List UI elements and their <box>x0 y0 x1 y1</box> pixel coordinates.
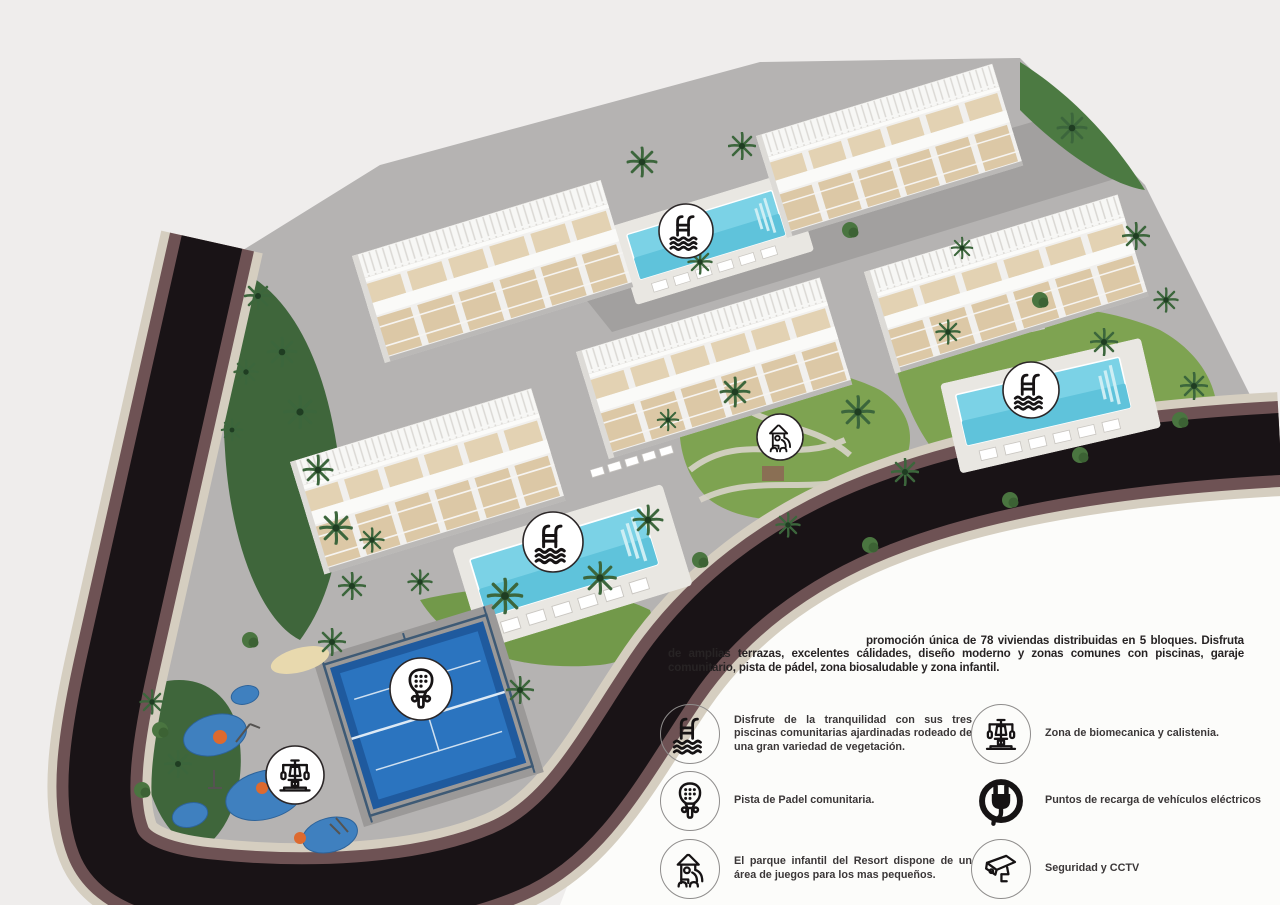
padel-racket-icon <box>669 780 711 822</box>
legend-item-padel: Pista de Padel comunitaria. <box>660 771 972 831</box>
pool-badge-center <box>523 512 583 572</box>
playground-badge <box>757 414 803 460</box>
legend-text-playground: El parque infantil del Resort dispone de… <box>734 855 972 882</box>
legend-circle <box>971 839 1031 899</box>
playground-icon <box>669 848 711 890</box>
pool-icon <box>669 713 711 755</box>
legend-text-ev-charging: Puntos de recarga de vehículos eléctrico… <box>1045 794 1280 808</box>
pool-badge-top <box>659 204 713 258</box>
legend-item-ev-charging: Puntos de recarga de vehículos eléctrico… <box>971 771 1280 831</box>
cctv-icon <box>980 848 1022 890</box>
legend-circle <box>660 839 720 899</box>
biomechanics-icon <box>980 713 1022 755</box>
legend-circle <box>971 704 1031 764</box>
legend-item-biomechanics: Zona de biomecanica y calistenia. <box>971 704 1280 764</box>
intro-paragraph: promoción única de 78 viviendas distribu… <box>668 634 1244 674</box>
legend-circle <box>660 704 720 764</box>
legend-circle <box>660 771 720 831</box>
legend-text-cctv: Seguridad y CCTV <box>1045 862 1280 876</box>
legend-text-biomechanics: Zona de biomecanica y calistenia. <box>1045 727 1280 741</box>
legend-text-padel: Pista de Padel comunitaria. <box>734 794 972 808</box>
biomech-badge <box>266 746 324 804</box>
legend-circle <box>971 771 1031 831</box>
legend-item-cctv: Seguridad y CCTV <box>971 839 1280 899</box>
legend-item-pools: Disfrute de la tranquilidad con sus tres… <box>660 704 972 764</box>
pool-badge-right <box>1003 362 1059 418</box>
ev-charger-icon <box>975 775 1027 827</box>
legend-item-playground: El parque infantil del Resort dispone de… <box>660 839 972 899</box>
legend-text-pools: Disfrute de la tranquilidad con sus tres… <box>734 714 972 755</box>
site-render <box>0 0 1280 905</box>
padel-badge <box>390 658 452 720</box>
